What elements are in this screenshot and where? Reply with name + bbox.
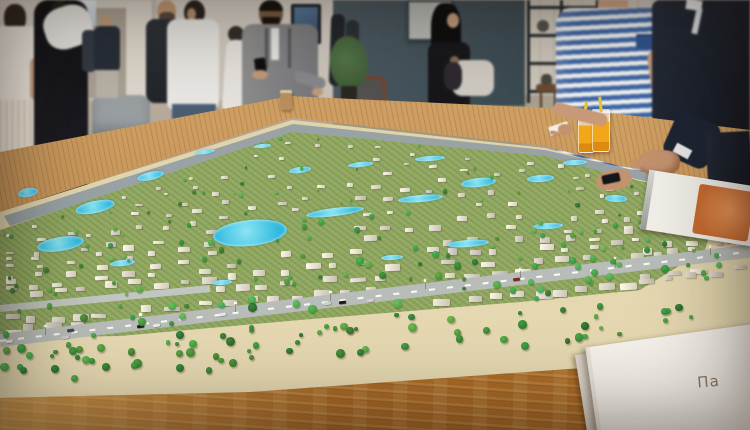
- model-tree: [248, 296, 255, 303]
- model-building: [589, 237, 601, 241]
- model-front-tree: [324, 324, 329, 329]
- model-building: [278, 201, 287, 204]
- model-front-tree: [597, 303, 604, 310]
- model-building: [488, 189, 494, 194]
- model-building: [429, 165, 437, 169]
- model-tree: [317, 138, 319, 140]
- model-building: [373, 158, 380, 162]
- juice-cup: [592, 109, 610, 152]
- model-tree: [168, 220, 172, 224]
- model-building: [287, 186, 292, 189]
- model-building: [329, 263, 336, 268]
- model-tree: [356, 257, 363, 264]
- model-front-tree: [357, 349, 364, 356]
- model-building: [573, 177, 579, 180]
- model-tree: [517, 191, 521, 195]
- model-tree: [118, 304, 122, 308]
- model-tree: [288, 275, 292, 279]
- model-tree: [202, 257, 207, 262]
- model-lake: [136, 169, 164, 182]
- model-building: [32, 225, 37, 228]
- model-building: [619, 283, 636, 291]
- model-front-tree: [128, 348, 136, 356]
- model-building: [122, 270, 135, 277]
- model-building: [29, 285, 38, 290]
- model-building: [67, 261, 75, 265]
- model-building: [617, 179, 623, 182]
- model-building: [606, 188, 614, 191]
- model-building: [66, 271, 76, 277]
- model-tree: [443, 189, 448, 194]
- model-tree: [318, 275, 322, 279]
- model-building: [370, 185, 380, 189]
- model-tree: [644, 247, 650, 253]
- model-tree: [292, 282, 296, 286]
- model-building: [55, 288, 67, 292]
- model-lake: [415, 154, 445, 161]
- model-front-tree: [518, 311, 522, 315]
- model-tree: [618, 214, 621, 217]
- model-tree: [80, 314, 88, 322]
- street-light-lamp: [139, 313, 142, 316]
- model-tree: [121, 234, 124, 237]
- model-building: [156, 187, 161, 190]
- model-building: [199, 269, 211, 274]
- model-front-tree: [69, 347, 76, 354]
- model-tree: [354, 227, 359, 232]
- model-building: [76, 286, 85, 290]
- model-front-tree: [91, 333, 96, 338]
- model-lake: [563, 159, 587, 165]
- model-lake: [605, 194, 627, 202]
- model-tree: [364, 261, 371, 268]
- street-light: [425, 281, 426, 289]
- model-tree: [356, 168, 358, 170]
- model-tree: [704, 276, 708, 280]
- model-front-tree: [189, 340, 197, 348]
- model-tree: [462, 287, 466, 291]
- model-building: [31, 257, 39, 261]
- model-building: [385, 264, 400, 271]
- model-building: [178, 247, 190, 252]
- model-building: [221, 176, 228, 179]
- model-tree: [621, 246, 624, 249]
- model-front-tree: [617, 332, 622, 337]
- model-tree: [446, 253, 451, 258]
- model-front-tree: [354, 327, 358, 331]
- model-building: [465, 158, 470, 160]
- model-building: [457, 216, 467, 221]
- model-tree: [686, 263, 690, 267]
- model-building: [476, 203, 482, 207]
- model-tree: [418, 262, 422, 266]
- model-building: [153, 241, 164, 244]
- model-building: [52, 283, 63, 287]
- model-car: [62, 335, 69, 339]
- model-tree: [350, 199, 353, 202]
- model-tree: [569, 257, 576, 264]
- model-building: [30, 291, 43, 297]
- model-tree: [17, 309, 21, 313]
- model-tree: [79, 264, 83, 268]
- model-building: [639, 279, 654, 285]
- model-building: [489, 249, 496, 255]
- model-tree: [179, 240, 184, 245]
- model-building: [506, 225, 516, 230]
- model-building: [317, 185, 325, 188]
- model-tree: [610, 259, 616, 265]
- model-building: [481, 262, 495, 267]
- model-building: [248, 206, 257, 211]
- model-front-tree: [176, 364, 184, 372]
- model-building: [322, 253, 333, 259]
- model-front-tree: [97, 344, 105, 352]
- model-tree: [302, 218, 305, 221]
- model-front-tree: [186, 348, 195, 357]
- model-building: [140, 305, 151, 312]
- model-tree: [248, 303, 256, 311]
- model-building: [469, 296, 482, 302]
- model-tree: [714, 253, 719, 258]
- model-building: [380, 226, 390, 230]
- model-tree: [317, 189, 319, 191]
- model-tree: [202, 191, 205, 194]
- model-tree: [534, 296, 539, 301]
- street-light: [710, 247, 711, 255]
- model-tree: [47, 287, 52, 292]
- model-building: [611, 239, 623, 245]
- model-building: [575, 286, 587, 292]
- model-front-tree: [575, 333, 584, 342]
- model-front-tree: [102, 363, 110, 371]
- model-front-tree: [89, 358, 95, 364]
- model-building: [97, 265, 108, 271]
- model-building: [193, 186, 199, 189]
- model-front-tree: [3, 347, 9, 353]
- model-tree: [510, 287, 516, 293]
- model-building: [624, 217, 630, 222]
- model-front-tree: [500, 336, 507, 343]
- street-light-lamp: [519, 268, 522, 271]
- model-tree: [233, 192, 235, 194]
- model-building: [147, 250, 154, 255]
- model-tree: [219, 247, 224, 252]
- model-tree: [276, 239, 279, 242]
- model-tree: [183, 178, 186, 181]
- model-front-tree: [0, 363, 9, 372]
- model-building: [441, 260, 455, 264]
- model-building: [315, 144, 320, 147]
- street-light: [520, 270, 521, 278]
- model-front-tree: [218, 358, 223, 363]
- model-building: [34, 252, 40, 257]
- model-building: [96, 252, 103, 256]
- model-tree: [406, 210, 411, 215]
- model-tree: [136, 286, 143, 293]
- model-front-tree: [66, 342, 72, 348]
- model-front-tree: [521, 342, 529, 350]
- model-tree: [630, 185, 633, 188]
- model-building: [624, 229, 633, 235]
- model-tree: [108, 243, 113, 248]
- model-tree: [716, 262, 722, 268]
- model-building: [470, 250, 481, 255]
- model-tree: [579, 230, 583, 234]
- model-front-tree: [71, 375, 78, 382]
- model-building: [664, 276, 672, 281]
- model-tree: [575, 203, 579, 207]
- model-lake: [212, 216, 288, 250]
- model-tree: [318, 219, 324, 225]
- model-building: [178, 260, 189, 265]
- model-building: [599, 283, 615, 291]
- model-building: [490, 293, 502, 299]
- model-tree: [343, 272, 348, 277]
- model-tree: [218, 302, 224, 308]
- model-building: [363, 235, 376, 241]
- model-tree: [613, 223, 618, 228]
- model-tree: [378, 236, 381, 239]
- model-tree: [47, 303, 52, 308]
- model-front-tree: [408, 314, 415, 321]
- model-building: [445, 273, 456, 279]
- model-tree: [43, 267, 49, 273]
- model-building: [519, 169, 525, 172]
- model-front-tree: [456, 335, 463, 342]
- model-building: [208, 251, 217, 255]
- model-building: [254, 155, 258, 157]
- model-building: [227, 264, 236, 268]
- model-front-tree: [131, 362, 137, 368]
- model-tree: [701, 270, 707, 276]
- model-building: [292, 208, 299, 212]
- model-building: [35, 272, 42, 276]
- model-building: [281, 251, 291, 258]
- model-lake: [17, 186, 38, 198]
- model-building: [405, 228, 413, 232]
- model-building: [576, 187, 584, 191]
- model-tree: [74, 229, 78, 233]
- model-front-tree: [317, 330, 322, 335]
- model-tree: [568, 190, 570, 192]
- model-front-tree: [220, 333, 226, 339]
- model-lake: [347, 160, 372, 168]
- model-building: [189, 177, 193, 180]
- model-tree: [518, 256, 522, 260]
- model-tree: [590, 255, 597, 262]
- model-building: [219, 215, 228, 218]
- model-building: [122, 195, 126, 198]
- model-building: [595, 209, 604, 214]
- model-building: [347, 183, 353, 187]
- model-tree: [308, 305, 316, 313]
- model-front-tree: [346, 327, 354, 335]
- model-tree: [109, 211, 111, 213]
- model-building: [148, 273, 155, 277]
- model-building: [128, 279, 141, 284]
- model-tree: [208, 240, 214, 246]
- exhibition-photo: Па: [0, 0, 750, 430]
- model-tree: [379, 272, 385, 278]
- model-tree: [192, 190, 196, 194]
- model-building: [557, 164, 563, 168]
- model-tree: [254, 277, 257, 280]
- model-building: [199, 301, 212, 306]
- model-tree: [606, 273, 613, 280]
- brochure-cover-art: [692, 184, 750, 242]
- model-front-tree: [336, 349, 345, 358]
- model-front-tree: [166, 340, 171, 345]
- model-front-tree: [17, 344, 26, 353]
- model-front-tree: [594, 314, 599, 319]
- model-building: [86, 234, 91, 237]
- model-building: [192, 209, 202, 214]
- model-tree: [14, 284, 18, 288]
- model-front-tree: [175, 342, 179, 346]
- model-building: [666, 271, 681, 276]
- model-building: [634, 192, 639, 195]
- model-building: [135, 204, 143, 206]
- model-tree: [293, 300, 301, 308]
- model-building: [136, 224, 142, 228]
- model-tree: [184, 304, 188, 308]
- model-front-tree: [53, 350, 58, 355]
- model-front-tree: [176, 331, 184, 339]
- model-building: [95, 275, 108, 280]
- model-building: [6, 264, 14, 267]
- model-tree: [467, 172, 470, 175]
- model-building: [561, 248, 568, 252]
- model-front-tree: [518, 320, 527, 329]
- model-tree: [493, 281, 501, 289]
- model-tree: [300, 254, 304, 258]
- model-building: [268, 175, 275, 178]
- model-tree: [538, 221, 543, 226]
- model-front-tree: [675, 304, 682, 311]
- model-lake: [397, 193, 442, 204]
- model-tree: [435, 272, 442, 279]
- model-tree: [472, 259, 478, 265]
- model-building: [383, 171, 392, 174]
- model-building: [487, 212, 495, 218]
- model-tree: [246, 209, 249, 212]
- model-tree: [278, 137, 281, 140]
- model-tree: [239, 193, 243, 197]
- model-tree: [575, 264, 581, 270]
- model-building: [553, 290, 567, 297]
- model-front-tree: [408, 323, 417, 332]
- model-building: [571, 216, 577, 221]
- model-building: [458, 193, 465, 197]
- model-front-tree: [447, 316, 454, 323]
- model-front-tree: [253, 342, 259, 348]
- model-building: [212, 192, 219, 196]
- model-building: [433, 299, 450, 306]
- model-tree: [491, 245, 494, 248]
- model-lake: [36, 233, 85, 254]
- model-building: [6, 314, 20, 320]
- model-tree: [307, 236, 311, 240]
- street-light-lamp: [44, 325, 47, 328]
- model-front-tree: [401, 343, 409, 351]
- model-building: [584, 174, 589, 178]
- model-front-tree: [663, 318, 669, 324]
- model-building: [6, 252, 14, 255]
- model-building: [322, 275, 336, 282]
- model-building: [216, 286, 225, 292]
- model-tree: [109, 256, 114, 261]
- model-tree: [244, 212, 247, 215]
- model-building: [235, 284, 249, 292]
- model-building: [375, 146, 381, 148]
- model-tree: [302, 224, 307, 229]
- model-tree: [187, 223, 191, 227]
- model-building: [255, 285, 267, 290]
- model-front-tree: [286, 348, 293, 355]
- model-tree: [561, 242, 566, 247]
- model-tree: [413, 245, 419, 251]
- model-front-tree: [689, 315, 694, 320]
- model-building: [400, 188, 410, 192]
- model-building: [515, 236, 523, 242]
- model-front-tree: [76, 346, 83, 353]
- model-building: [429, 225, 441, 231]
- model-building: [181, 280, 189, 284]
- model-tree: [545, 290, 550, 295]
- model-building: [438, 178, 446, 182]
- model-building: [459, 169, 467, 172]
- model-building: [602, 219, 608, 223]
- model-tree: [605, 177, 609, 181]
- model-building: [190, 221, 196, 226]
- model-front-tree: [483, 327, 490, 334]
- model-tree: [418, 145, 420, 147]
- model-building: [387, 211, 394, 214]
- model-lake: [74, 197, 116, 217]
- model-building: [734, 264, 746, 269]
- model-front-tree: [599, 326, 604, 331]
- model-building: [348, 145, 353, 148]
- model-tree: [473, 167, 476, 170]
- model-building: [590, 245, 599, 250]
- model-front-tree: [581, 322, 589, 330]
- model-building: [516, 215, 522, 220]
- model-lake: [381, 254, 403, 261]
- model-building: [632, 238, 639, 241]
- model-building: [527, 162, 534, 165]
- model-lake: [253, 143, 270, 149]
- model-front-tree: [249, 355, 254, 360]
- model-tree: [240, 182, 244, 186]
- model-building: [131, 212, 139, 215]
- model-tree: [85, 244, 89, 248]
- model-front-tree: [20, 367, 27, 374]
- model-building: [508, 202, 517, 206]
- model-front-tree: [299, 333, 303, 337]
- model-tree: [274, 191, 278, 195]
- brochure-partial-title: Па: [697, 372, 721, 392]
- model-tree: [245, 166, 248, 169]
- model-tree: [10, 288, 15, 293]
- street-light-lamp: [424, 279, 427, 282]
- model-front-tree: [333, 326, 338, 331]
- model-front-tree: [247, 349, 251, 353]
- model-lake: [306, 204, 365, 219]
- model-building: [285, 142, 292, 144]
- model-tree: [147, 211, 150, 214]
- model-front-tree: [229, 359, 237, 367]
- model-building: [164, 193, 168, 195]
